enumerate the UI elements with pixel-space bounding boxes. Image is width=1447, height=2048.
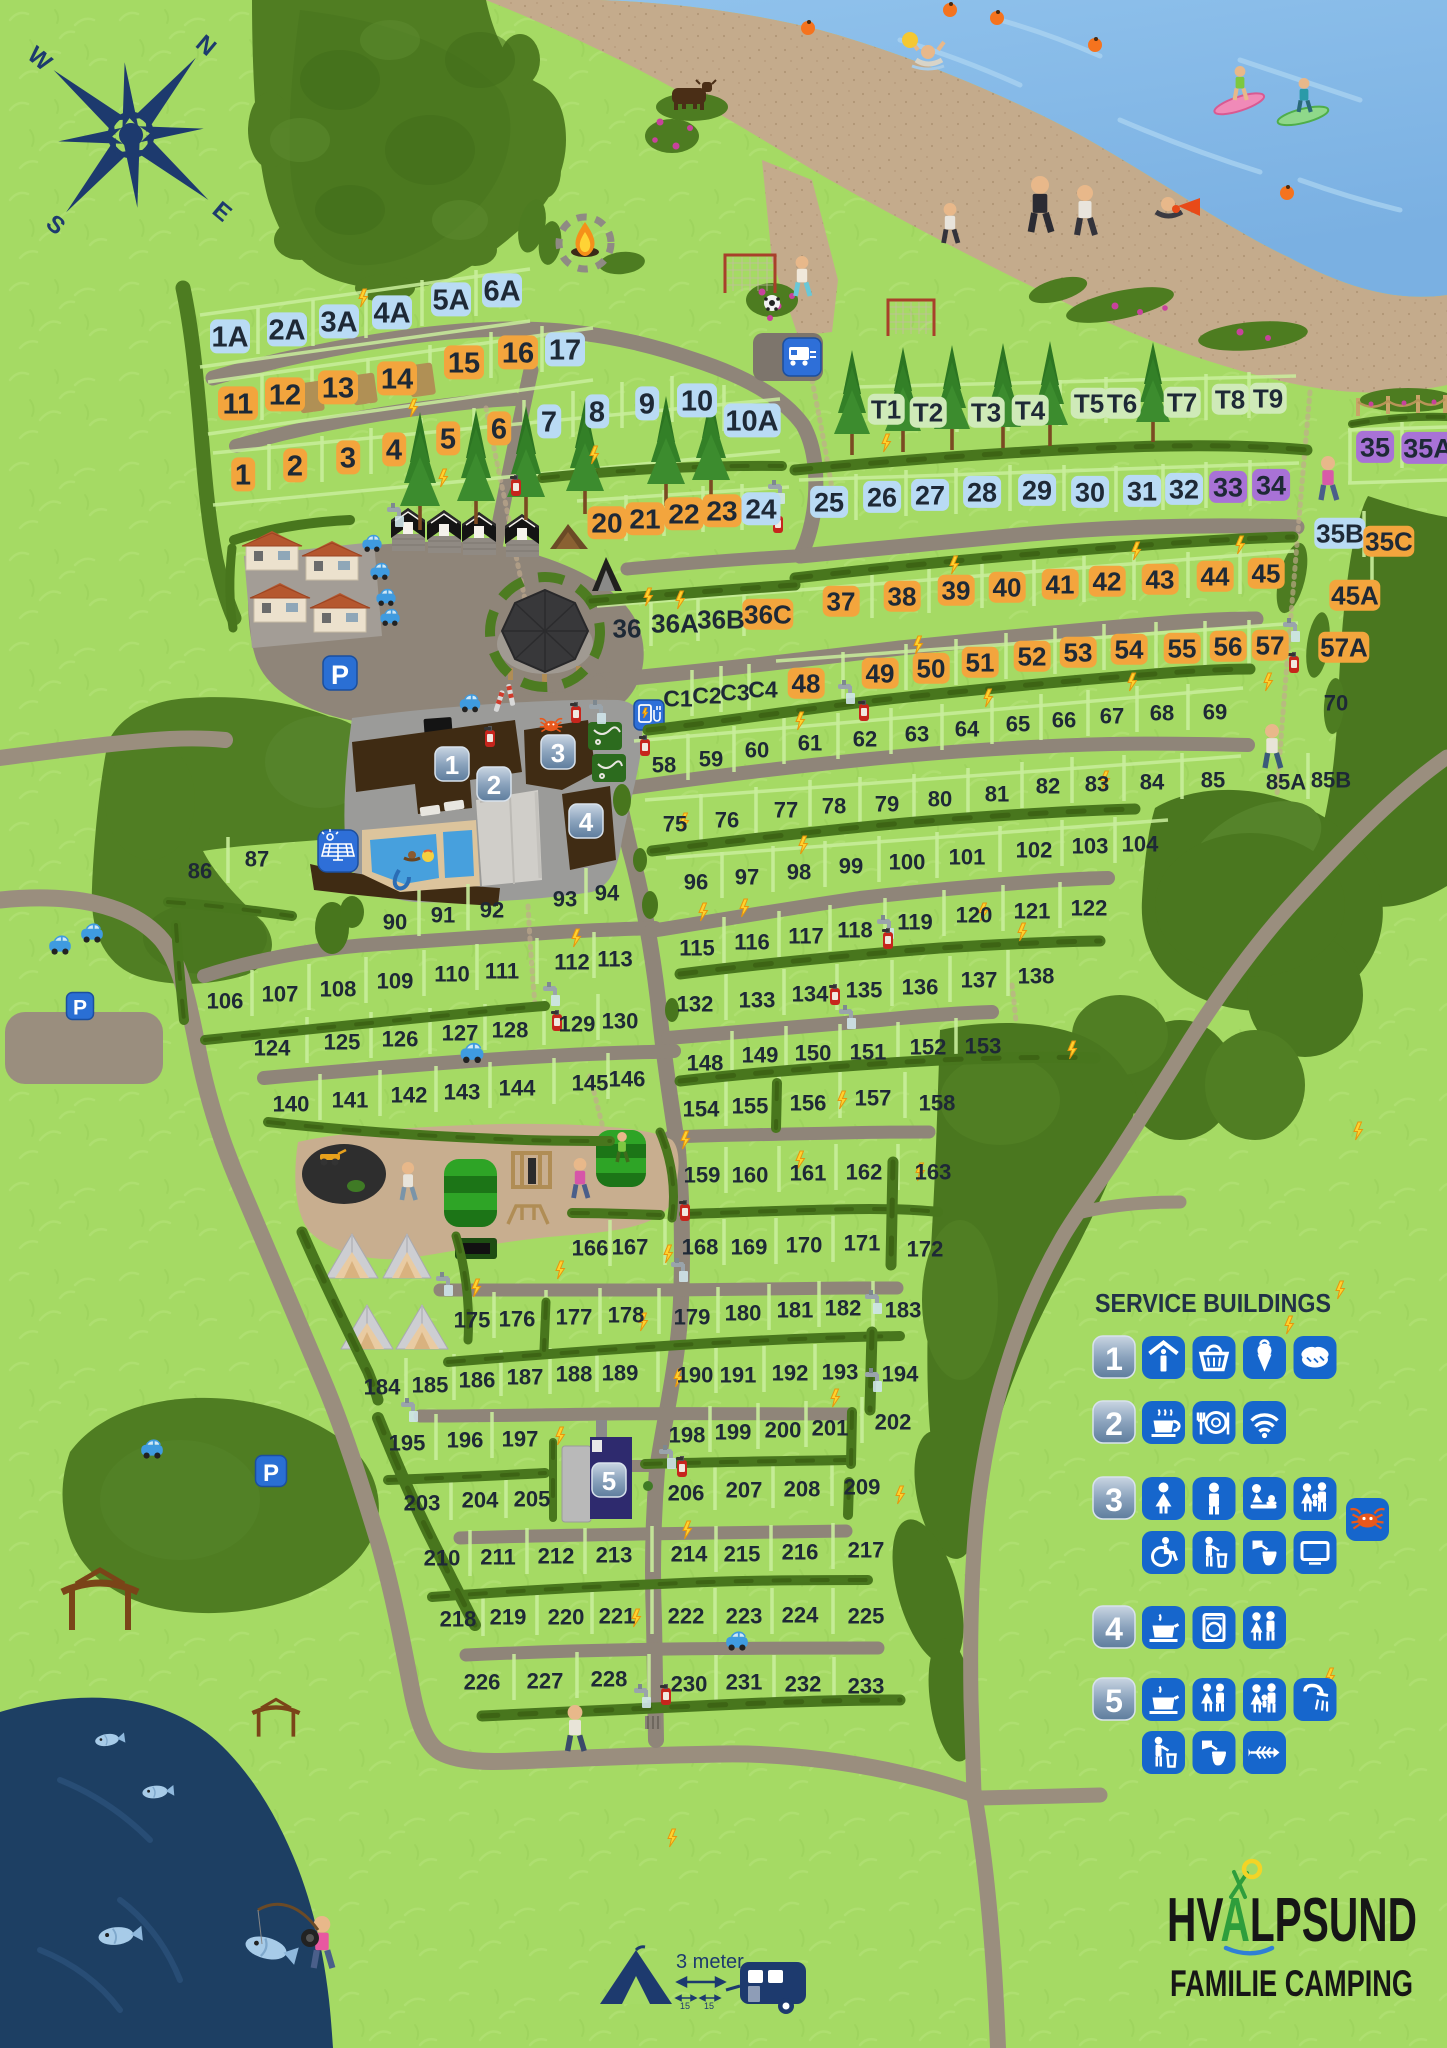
svg-text:1: 1: [1105, 1341, 1123, 1377]
svg-text:104: 104: [1122, 831, 1159, 856]
svg-text:81: 81: [985, 781, 1009, 806]
svg-text:57A: 57A: [1320, 633, 1368, 663]
svg-text:169: 169: [731, 1234, 768, 1259]
svg-text:118: 118: [837, 917, 873, 942]
svg-text:179: 179: [674, 1304, 711, 1329]
svg-text:4: 4: [1105, 1611, 1123, 1647]
svg-text:183: 183: [885, 1297, 922, 1322]
svg-text:50: 50: [917, 654, 946, 684]
svg-text:FAMILIE CAMPING: FAMILIE CAMPING: [1170, 1963, 1413, 2004]
svg-text:148: 148: [687, 1050, 724, 1075]
svg-text:171: 171: [844, 1230, 881, 1255]
svg-text:23: 23: [706, 496, 737, 527]
svg-text:36B: 36B: [697, 605, 745, 635]
svg-text:58: 58: [652, 752, 676, 777]
svg-text:230: 230: [671, 1671, 708, 1696]
svg-text:T7: T7: [1167, 388, 1197, 418]
svg-text:159: 159: [684, 1162, 721, 1187]
svg-text:187: 187: [507, 1364, 544, 1389]
svg-text:82: 82: [1036, 773, 1060, 798]
svg-text:C3: C3: [720, 679, 749, 705]
svg-text:11: 11: [223, 389, 254, 421]
svg-text:C1: C1: [663, 685, 693, 711]
svg-text:144: 144: [499, 1075, 536, 1100]
svg-text:121: 121: [1014, 898, 1051, 923]
svg-text:223: 223: [726, 1603, 763, 1628]
svg-text:149: 149: [742, 1042, 779, 1067]
svg-text:1A: 1A: [211, 322, 248, 354]
svg-text:201: 201: [812, 1415, 849, 1440]
svg-text:32: 32: [1169, 475, 1199, 505]
svg-text:151: 151: [850, 1039, 887, 1064]
svg-text:16: 16: [502, 338, 534, 370]
svg-text:184: 184: [364, 1374, 401, 1399]
svg-text:25: 25: [814, 488, 844, 518]
svg-text:221: 221: [599, 1603, 636, 1628]
svg-text:103: 103: [1072, 833, 1109, 858]
svg-text:41: 41: [1046, 570, 1075, 600]
svg-text:13: 13: [322, 373, 354, 405]
svg-text:HVALPSUND: HVALPSUND: [1167, 1886, 1417, 1955]
svg-text:155: 155: [732, 1093, 769, 1118]
svg-text:224: 224: [782, 1602, 819, 1627]
svg-text:100: 100: [889, 849, 926, 874]
svg-text:176: 176: [499, 1306, 536, 1331]
svg-text:205: 205: [514, 1486, 551, 1511]
svg-text:226: 226: [464, 1669, 501, 1694]
svg-text:107: 107: [262, 981, 299, 1006]
svg-text:T6: T6: [1107, 389, 1137, 419]
svg-text:45A: 45A: [1331, 581, 1379, 611]
svg-text:214: 214: [671, 1541, 708, 1566]
svg-text:152: 152: [910, 1034, 947, 1059]
svg-text:119: 119: [897, 909, 933, 934]
svg-text:60: 60: [745, 737, 769, 762]
svg-text:108: 108: [320, 976, 357, 1001]
svg-text:222: 222: [668, 1603, 705, 1628]
svg-text:42: 42: [1093, 567, 1122, 597]
svg-text:154: 154: [683, 1096, 720, 1121]
svg-text:70: 70: [1324, 690, 1348, 715]
svg-text:110: 110: [434, 961, 470, 986]
svg-text:62: 62: [853, 726, 877, 751]
svg-text:86: 86: [188, 858, 212, 883]
svg-text:P: P: [73, 997, 87, 1020]
svg-text:132: 132: [677, 991, 714, 1016]
svg-text:36A: 36A: [651, 609, 699, 639]
svg-text:212: 212: [538, 1543, 575, 1568]
svg-text:196: 196: [447, 1427, 484, 1452]
svg-text:3 meter: 3 meter: [676, 1951, 744, 1973]
svg-text:228: 228: [591, 1666, 628, 1691]
svg-text:2: 2: [1105, 1406, 1123, 1442]
svg-text:209: 209: [844, 1474, 881, 1499]
svg-text:172: 172: [907, 1236, 944, 1261]
svg-text:44: 44: [1201, 562, 1230, 592]
svg-text:215: 215: [724, 1541, 761, 1566]
svg-text:57: 57: [1256, 631, 1285, 661]
svg-text:T4: T4: [1015, 396, 1046, 426]
svg-text:T2: T2: [913, 398, 943, 428]
svg-text:65: 65: [1006, 711, 1030, 736]
svg-text:34: 34: [1256, 471, 1286, 501]
svg-text:78: 78: [822, 793, 846, 818]
svg-text:186: 186: [459, 1367, 496, 1392]
svg-text:206: 206: [668, 1480, 705, 1505]
svg-text:113: 113: [597, 946, 633, 971]
svg-text:43: 43: [1146, 565, 1175, 595]
svg-text:227: 227: [527, 1668, 564, 1693]
svg-text:48: 48: [792, 669, 821, 699]
svg-text:T3: T3: [971, 398, 1001, 428]
svg-text:160: 160: [732, 1162, 769, 1187]
svg-text:84: 84: [1140, 769, 1165, 794]
svg-text:192: 192: [772, 1360, 809, 1385]
svg-text:33: 33: [1213, 473, 1243, 503]
svg-text:45: 45: [1252, 559, 1281, 589]
svg-text:12: 12: [269, 380, 301, 412]
svg-text:SERVICE BUILDINGS: SERVICE BUILDINGS: [1095, 1288, 1331, 1318]
svg-text:143: 143: [444, 1079, 481, 1104]
svg-text:207: 207: [726, 1477, 763, 1502]
svg-text:115: 115: [679, 935, 715, 960]
svg-text:94: 94: [595, 880, 620, 905]
svg-text:199: 199: [715, 1419, 752, 1444]
svg-text:49: 49: [866, 659, 895, 689]
svg-text:210: 210: [424, 1545, 461, 1570]
svg-text:128: 128: [492, 1017, 529, 1042]
svg-text:P: P: [331, 660, 349, 690]
svg-text:194: 194: [882, 1361, 919, 1386]
svg-text:233: 233: [848, 1673, 885, 1698]
svg-text:122: 122: [1071, 895, 1108, 920]
svg-text:87: 87: [245, 846, 269, 871]
svg-text:T8: T8: [1215, 385, 1245, 415]
svg-text:203: 203: [404, 1490, 441, 1515]
svg-text:77: 77: [774, 797, 798, 822]
svg-text:39: 39: [942, 576, 971, 606]
svg-text:220: 220: [548, 1604, 585, 1629]
svg-text:217: 217: [848, 1537, 885, 1562]
svg-text:4: 4: [579, 807, 594, 837]
svg-text:28: 28: [967, 478, 997, 508]
svg-text:40: 40: [993, 573, 1022, 603]
svg-text:137: 137: [961, 967, 998, 992]
svg-text:191: 191: [720, 1362, 757, 1387]
svg-text:35A: 35A: [1403, 434, 1447, 464]
svg-text:56: 56: [1214, 632, 1243, 662]
svg-text:35B: 35B: [1316, 519, 1364, 549]
svg-text:126: 126: [382, 1026, 419, 1051]
svg-text:136: 136: [902, 974, 939, 999]
svg-text:168: 168: [682, 1234, 719, 1259]
svg-text:127: 127: [442, 1020, 479, 1045]
svg-text:35: 35: [1360, 433, 1390, 463]
svg-text:153: 153: [965, 1033, 1002, 1058]
svg-text:180: 180: [725, 1300, 762, 1325]
svg-text:36: 36: [613, 614, 642, 644]
svg-text:141: 141: [332, 1087, 369, 1112]
svg-text:C2: C2: [692, 682, 721, 708]
svg-text:T1: T1: [871, 395, 901, 425]
svg-text:59: 59: [699, 746, 723, 771]
svg-text:5: 5: [440, 424, 456, 456]
svg-text:5: 5: [602, 1466, 616, 1496]
svg-text:27: 27: [915, 481, 945, 511]
svg-text:68: 68: [1150, 700, 1174, 725]
svg-text:142: 142: [391, 1082, 428, 1107]
svg-text:193: 193: [822, 1359, 859, 1384]
svg-text:17: 17: [549, 335, 581, 367]
svg-text:85: 85: [1201, 767, 1225, 792]
svg-text:117: 117: [788, 923, 824, 948]
svg-text:T9: T9: [1253, 384, 1283, 414]
svg-text:225: 225: [848, 1603, 885, 1628]
svg-text:216: 216: [782, 1539, 819, 1564]
svg-text:170: 170: [786, 1232, 823, 1257]
svg-text:38: 38: [888, 582, 917, 612]
svg-text:3: 3: [340, 443, 356, 475]
svg-text:4: 4: [386, 435, 402, 467]
svg-text:53: 53: [1064, 638, 1093, 668]
svg-text:3A: 3A: [320, 307, 357, 339]
svg-text:C4: C4: [748, 676, 778, 702]
svg-text:1: 1: [445, 750, 459, 780]
svg-text:175: 175: [454, 1307, 491, 1332]
svg-text:219: 219: [490, 1604, 527, 1629]
svg-text:185: 185: [412, 1372, 449, 1397]
svg-text:112: 112: [554, 949, 590, 974]
svg-text:15: 15: [680, 2001, 690, 2011]
svg-text:125: 125: [324, 1029, 361, 1054]
svg-text:146: 146: [609, 1066, 646, 1091]
svg-text:5A: 5A: [432, 285, 469, 317]
svg-text:195: 195: [389, 1430, 426, 1455]
svg-text:200: 200: [765, 1417, 802, 1442]
svg-text:202: 202: [875, 1409, 912, 1434]
svg-text:52: 52: [1018, 642, 1047, 672]
svg-text:213: 213: [596, 1542, 633, 1567]
svg-text:64: 64: [955, 716, 980, 741]
svg-text:208: 208: [784, 1476, 821, 1501]
svg-text:93: 93: [553, 886, 577, 911]
svg-text:101: 101: [949, 844, 986, 869]
svg-text:204: 204: [462, 1487, 499, 1512]
svg-text:31: 31: [1127, 477, 1157, 507]
svg-text:177: 177: [556, 1304, 593, 1329]
svg-text:157: 157: [855, 1085, 892, 1110]
svg-text:182: 182: [825, 1295, 862, 1320]
svg-text:54: 54: [1115, 635, 1144, 665]
svg-text:109: 109: [377, 968, 414, 993]
svg-text:231: 231: [726, 1669, 763, 1694]
svg-text:4A: 4A: [373, 298, 410, 330]
svg-text:156: 156: [790, 1090, 827, 1115]
svg-text:T5: T5: [1074, 389, 1104, 419]
svg-text:92: 92: [480, 897, 504, 922]
svg-text:106: 106: [207, 988, 244, 1013]
svg-text:96: 96: [684, 869, 708, 894]
svg-text:116: 116: [734, 929, 770, 954]
svg-text:162: 162: [846, 1159, 883, 1184]
svg-text:2A: 2A: [268, 315, 305, 347]
svg-text:21: 21: [629, 504, 660, 535]
svg-text:6A: 6A: [483, 276, 520, 308]
svg-text:24: 24: [745, 494, 777, 525]
svg-text:85B: 85B: [1311, 767, 1351, 792]
svg-text:188: 188: [556, 1361, 593, 1386]
svg-text:197: 197: [502, 1426, 539, 1451]
svg-text:63: 63: [905, 721, 929, 746]
svg-text:15: 15: [448, 348, 480, 380]
svg-text:26: 26: [867, 483, 897, 513]
svg-text:218: 218: [440, 1606, 477, 1631]
svg-text:37: 37: [827, 587, 856, 617]
svg-text:35C: 35C: [1365, 527, 1413, 557]
svg-text:2: 2: [287, 451, 303, 483]
svg-text:1: 1: [235, 460, 251, 492]
svg-text:133: 133: [739, 987, 776, 1012]
svg-text:51: 51: [966, 648, 995, 678]
svg-text:190: 190: [677, 1362, 714, 1387]
svg-text:76: 76: [715, 807, 739, 832]
svg-text:80: 80: [928, 786, 952, 811]
svg-text:90: 90: [383, 909, 407, 934]
svg-text:8: 8: [589, 397, 605, 429]
svg-text:134: 134: [792, 981, 829, 1006]
svg-text:5: 5: [1105, 1683, 1123, 1719]
svg-text:36C: 36C: [744, 600, 792, 630]
svg-text:15: 15: [704, 2001, 714, 2011]
svg-text:232: 232: [785, 1671, 822, 1696]
svg-text:22: 22: [668, 499, 699, 530]
svg-text:14: 14: [381, 364, 413, 396]
svg-text:66: 66: [1052, 707, 1076, 732]
svg-text:211: 211: [480, 1544, 516, 1569]
svg-text:98: 98: [787, 859, 811, 884]
svg-text:99: 99: [839, 853, 863, 878]
svg-text:135: 135: [846, 977, 883, 1002]
svg-text:198: 198: [669, 1422, 706, 1447]
svg-text:79: 79: [875, 791, 899, 816]
svg-text:3: 3: [1105, 1482, 1123, 1518]
svg-text:158: 158: [919, 1090, 956, 1115]
svg-text:6: 6: [491, 414, 507, 446]
svg-text:61: 61: [798, 730, 822, 755]
svg-text:102: 102: [1016, 837, 1053, 862]
svg-text:10: 10: [681, 386, 713, 418]
svg-text:120: 120: [956, 902, 993, 927]
svg-text:124: 124: [254, 1035, 291, 1060]
svg-text:30: 30: [1075, 478, 1105, 508]
svg-text:91: 91: [431, 902, 455, 927]
svg-text:161: 161: [790, 1160, 827, 1185]
svg-text:166: 166: [572, 1235, 609, 1260]
svg-text:97: 97: [735, 864, 759, 889]
svg-text:138: 138: [1018, 963, 1055, 988]
svg-text:163: 163: [915, 1159, 952, 1184]
svg-text:20: 20: [591, 508, 622, 539]
svg-text:140: 140: [273, 1091, 310, 1116]
svg-text:178: 178: [608, 1302, 645, 1327]
svg-text:181: 181: [777, 1297, 814, 1322]
svg-text:130: 130: [602, 1008, 639, 1033]
svg-text:9: 9: [639, 389, 655, 421]
svg-text:69: 69: [1203, 699, 1227, 724]
svg-text:150: 150: [795, 1040, 832, 1065]
svg-text:167: 167: [612, 1234, 649, 1259]
svg-text:7: 7: [541, 407, 557, 439]
svg-text:83: 83: [1085, 771, 1109, 796]
svg-text:10A: 10A: [725, 406, 778, 438]
svg-text:145: 145: [572, 1070, 609, 1095]
svg-text:189: 189: [602, 1360, 639, 1385]
svg-text:67: 67: [1100, 703, 1124, 728]
svg-text:111: 111: [485, 958, 519, 983]
svg-text:55: 55: [1168, 634, 1197, 664]
svg-text:85A: 85A: [1266, 769, 1306, 794]
svg-text:75: 75: [663, 811, 687, 836]
svg-text:29: 29: [1022, 476, 1052, 506]
svg-text:P: P: [263, 1460, 279, 1487]
svg-text:129: 129: [559, 1011, 596, 1036]
svg-text:3: 3: [551, 738, 565, 768]
svg-text:2: 2: [487, 770, 501, 800]
